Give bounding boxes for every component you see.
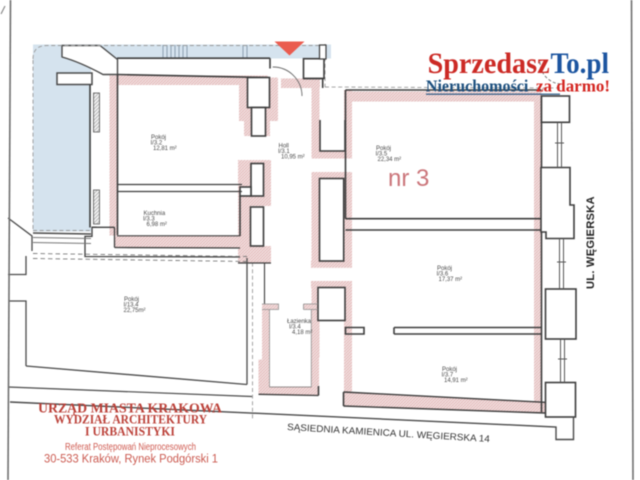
svg-text:12,81 m²: 12,81 m²	[153, 146, 177, 152]
svg-text:Nieruchomości: Nieruchomości	[426, 77, 529, 96]
svg-text:4,18 m²: 4,18 m²	[292, 330, 312, 336]
svg-text:Sprzedasz: Sprzedasz	[428, 47, 550, 80]
svg-text:14,91 m²: 14,91 m²	[444, 378, 468, 384]
svg-text:30-533 Kraków, Rynek Podgórski: 30-533 Kraków, Rynek Podgórski 1	[44, 454, 218, 466]
svg-text:za darmo!: za darmo!	[536, 77, 610, 96]
svg-text:To.pl: To.pl	[551, 47, 610, 80]
svg-text:10,95 m²: 10,95 m²	[281, 155, 305, 161]
svg-text:UL. WĘGIERSKA: UL. WĘGIERSKA	[585, 196, 597, 289]
svg-text:nr 3: nr 3	[388, 165, 429, 192]
svg-text:6,98 m²: 6,98 m²	[147, 222, 167, 228]
svg-text:I URBANISTYKI: I URBANISTYKI	[85, 425, 175, 439]
svg-text:Referat Postępowań Nieprocesow: Referat Postępowań Nieprocesowych	[65, 442, 196, 453]
svg-text:17,37 m²: 17,37 m²	[439, 277, 463, 283]
svg-text:22,34 m²: 22,34 m²	[378, 157, 402, 163]
svg-text:22,75m²: 22,75m²	[124, 308, 146, 314]
